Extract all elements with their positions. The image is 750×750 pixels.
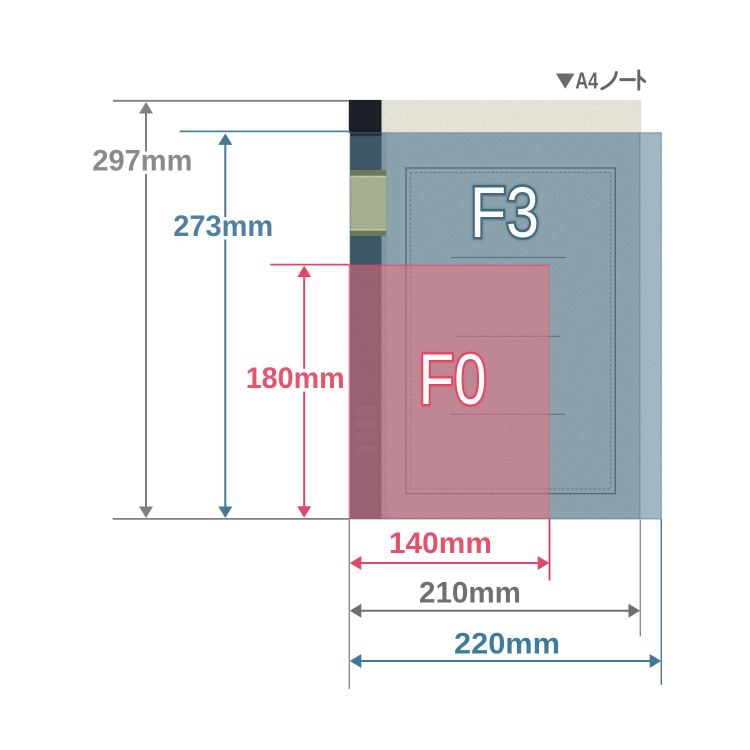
svg-text:220mm: 220mm <box>454 627 560 660</box>
svg-text:F3: F3 <box>470 174 539 253</box>
svg-text:297mm: 297mm <box>92 144 192 177</box>
svg-text:140mm: 140mm <box>389 527 492 560</box>
svg-text:210mm: 210mm <box>419 576 521 609</box>
svg-text:A4: A4 <box>575 67 598 93</box>
svg-text:180mm: 180mm <box>246 362 345 395</box>
svg-text:273mm: 273mm <box>173 210 273 243</box>
